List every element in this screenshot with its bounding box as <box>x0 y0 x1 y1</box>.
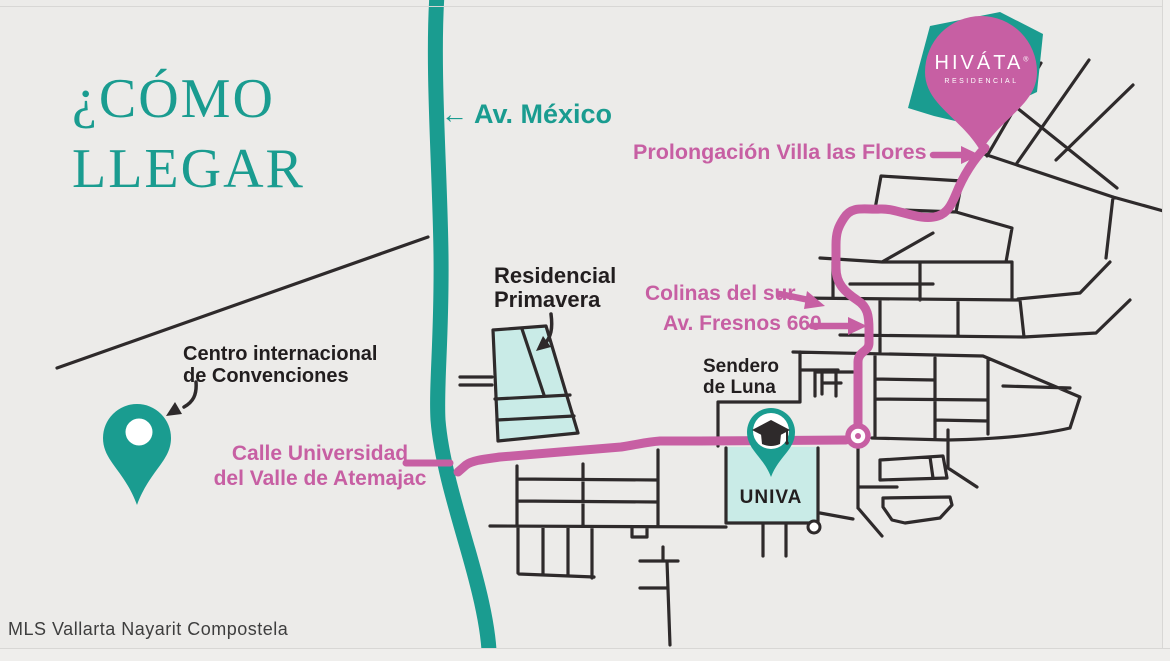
label-av-fresnos-660: Av. Fresnos 660 <box>663 312 822 336</box>
registered-mark: ® <box>1023 56 1028 63</box>
right-edge-line <box>1162 0 1163 649</box>
label-centro-convenciones: Centro internacional de Convenciones <box>183 343 377 387</box>
small-roundabout-icon <box>808 521 820 533</box>
bottom-edge-line <box>0 648 1170 649</box>
brand-name: HIVÁTA® <box>925 52 1038 75</box>
como-llegar-map: ¿CÓMO LLEGAR ←Av. México Prolongación Vi… <box>0 0 1170 661</box>
page-title: ¿CÓMO LLEGAR <box>72 64 305 204</box>
watermark: MLS Vallarta Nayarit Compostela <box>8 619 288 640</box>
hivata-brand-logo: HIVÁTA® RESIDENCIAL <box>925 52 1038 85</box>
centro-arrow-icon <box>166 382 196 416</box>
residencial-primavera-area <box>493 326 578 441</box>
label-prolongacion-villa-las-flores: Prolongación Villa las Flores <box>633 140 927 165</box>
roundabout-icon <box>848 426 868 446</box>
label-colinas-del-sur: Colinas del sur <box>645 282 796 306</box>
bottom-edge-strip <box>0 649 1170 661</box>
top-edge-line <box>0 6 1163 7</box>
left-arrow-icon: ← <box>441 99 468 129</box>
label-av-mexico: ←Av. México <box>441 99 612 130</box>
label-calle-universidad: Calle Universidad del Valle de Atemajac <box>198 441 442 491</box>
label-sendero-de-luna: Sendero de Luna <box>703 356 779 398</box>
right-edge-strip <box>1163 0 1170 661</box>
av-mexico-road <box>435 0 489 650</box>
label-residencial-primavera: Residencial Primavera <box>494 264 616 312</box>
brand-subtitle: RESIDENCIAL <box>925 78 1038 85</box>
title-line2: LLEGAR <box>72 134 305 204</box>
label-univa: UNIVA <box>735 487 807 509</box>
av-mexico-text: Av. México <box>474 99 612 129</box>
title-line1: ¿CÓMO <box>72 64 305 134</box>
convention-center-pin-icon <box>103 404 171 505</box>
